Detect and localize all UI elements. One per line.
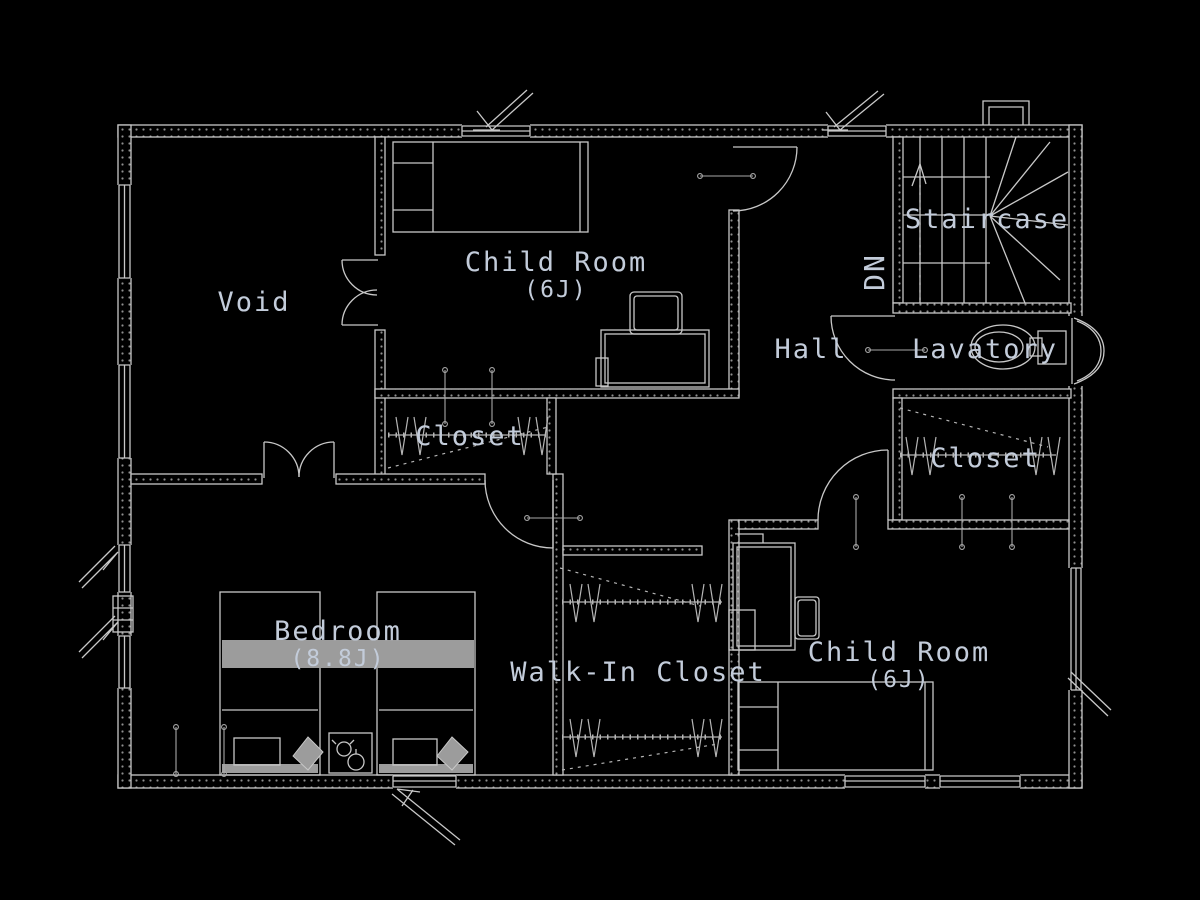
window-left-2: [117, 365, 132, 458]
wall-void-east-upper: [375, 137, 385, 255]
window-lavatory-casement: [1068, 316, 1104, 386]
door-child-room-1: [733, 147, 797, 211]
down-arrow-icon: [912, 164, 926, 186]
window-left-3: [117, 545, 132, 592]
window-right-1: [1068, 568, 1083, 690]
wall-stair-west: [893, 137, 903, 303]
room-label-bedroom: Bedroom: [274, 616, 402, 647]
wall-lavatory-south: [893, 389, 1071, 398]
room-label-staircase: Staircase: [905, 204, 1069, 235]
double-door-void-east: [342, 260, 378, 325]
nightstand: [329, 733, 372, 773]
wall-bottom: [118, 775, 1082, 788]
room-size-bedroom: (8.8J): [290, 646, 385, 672]
wall-child1-south: [375, 389, 739, 398]
wic-rod-top: [560, 568, 722, 622]
dim-mark: [698, 174, 756, 179]
bay-bump-outer: [983, 101, 1029, 125]
room-size-child-room-2: (6J): [867, 667, 930, 693]
dim-mark: [174, 725, 179, 777]
wall-closet1-east: [547, 398, 556, 474]
dim-mark: [854, 495, 859, 550]
room-label-child-room-2: Child Room: [808, 637, 991, 668]
wall-top: [118, 125, 1082, 137]
room-label-void: Void: [217, 287, 290, 318]
double-door-void-south: [264, 442, 334, 478]
floor-plan-drawing: Void Child Room (6J) Staircase DN Hall L…: [0, 0, 1200, 900]
window-bottom-3: [940, 774, 1020, 789]
pillow-left: [234, 737, 323, 770]
room-size-child-room-1: (6J): [524, 277, 587, 303]
section-mark-bottom: [392, 789, 460, 845]
bed-child-room-1: [393, 142, 588, 232]
desk-child-room-2: [729, 534, 819, 650]
wall-child2-north-west: [739, 520, 818, 529]
room-label-closet-1: Closet: [415, 421, 525, 452]
wall-void-south-west: [131, 474, 262, 484]
room-label-lavatory: Lavatory: [912, 334, 1058, 365]
room-label-child-room-1: Child Room: [465, 247, 648, 278]
wall-child1-hall: [729, 210, 739, 396]
room-label-hall: Hall: [774, 334, 847, 365]
wic-rod-bottom: [562, 719, 722, 770]
stair-direction-label: DN: [858, 253, 891, 291]
window-left-1: [117, 185, 132, 278]
room-label-walk-in-closet: Walk-In Closet: [510, 657, 766, 688]
section-mark-left-1: [79, 546, 118, 588]
door-child-room-2: [818, 450, 888, 520]
bed-child-room-2: [738, 682, 933, 770]
wall-closet2-west: [893, 398, 902, 520]
desk-child-room-1: [596, 292, 709, 387]
bay-bump-inner: [989, 107, 1023, 125]
door-bedroom: [485, 480, 553, 548]
wall-void-east-lower: [375, 330, 385, 476]
window-bottom-2: [845, 774, 925, 789]
section-mark-left-2: [79, 616, 118, 658]
floor-plan-canvas: Void Child Room (6J) Staircase DN Hall L…: [0, 0, 1200, 900]
pillow-right: [393, 737, 468, 770]
wall-stair-south: [893, 303, 1071, 313]
wall-bedroom-wic: [553, 474, 563, 775]
wall-child2-north-east: [888, 520, 1069, 529]
wall-wic-north: [563, 546, 702, 555]
wall-void-south-east: [336, 474, 485, 484]
window-left-4: [117, 636, 132, 688]
room-label-closet-2: Closet: [930, 443, 1040, 474]
window-bottom-1: [393, 774, 456, 789]
